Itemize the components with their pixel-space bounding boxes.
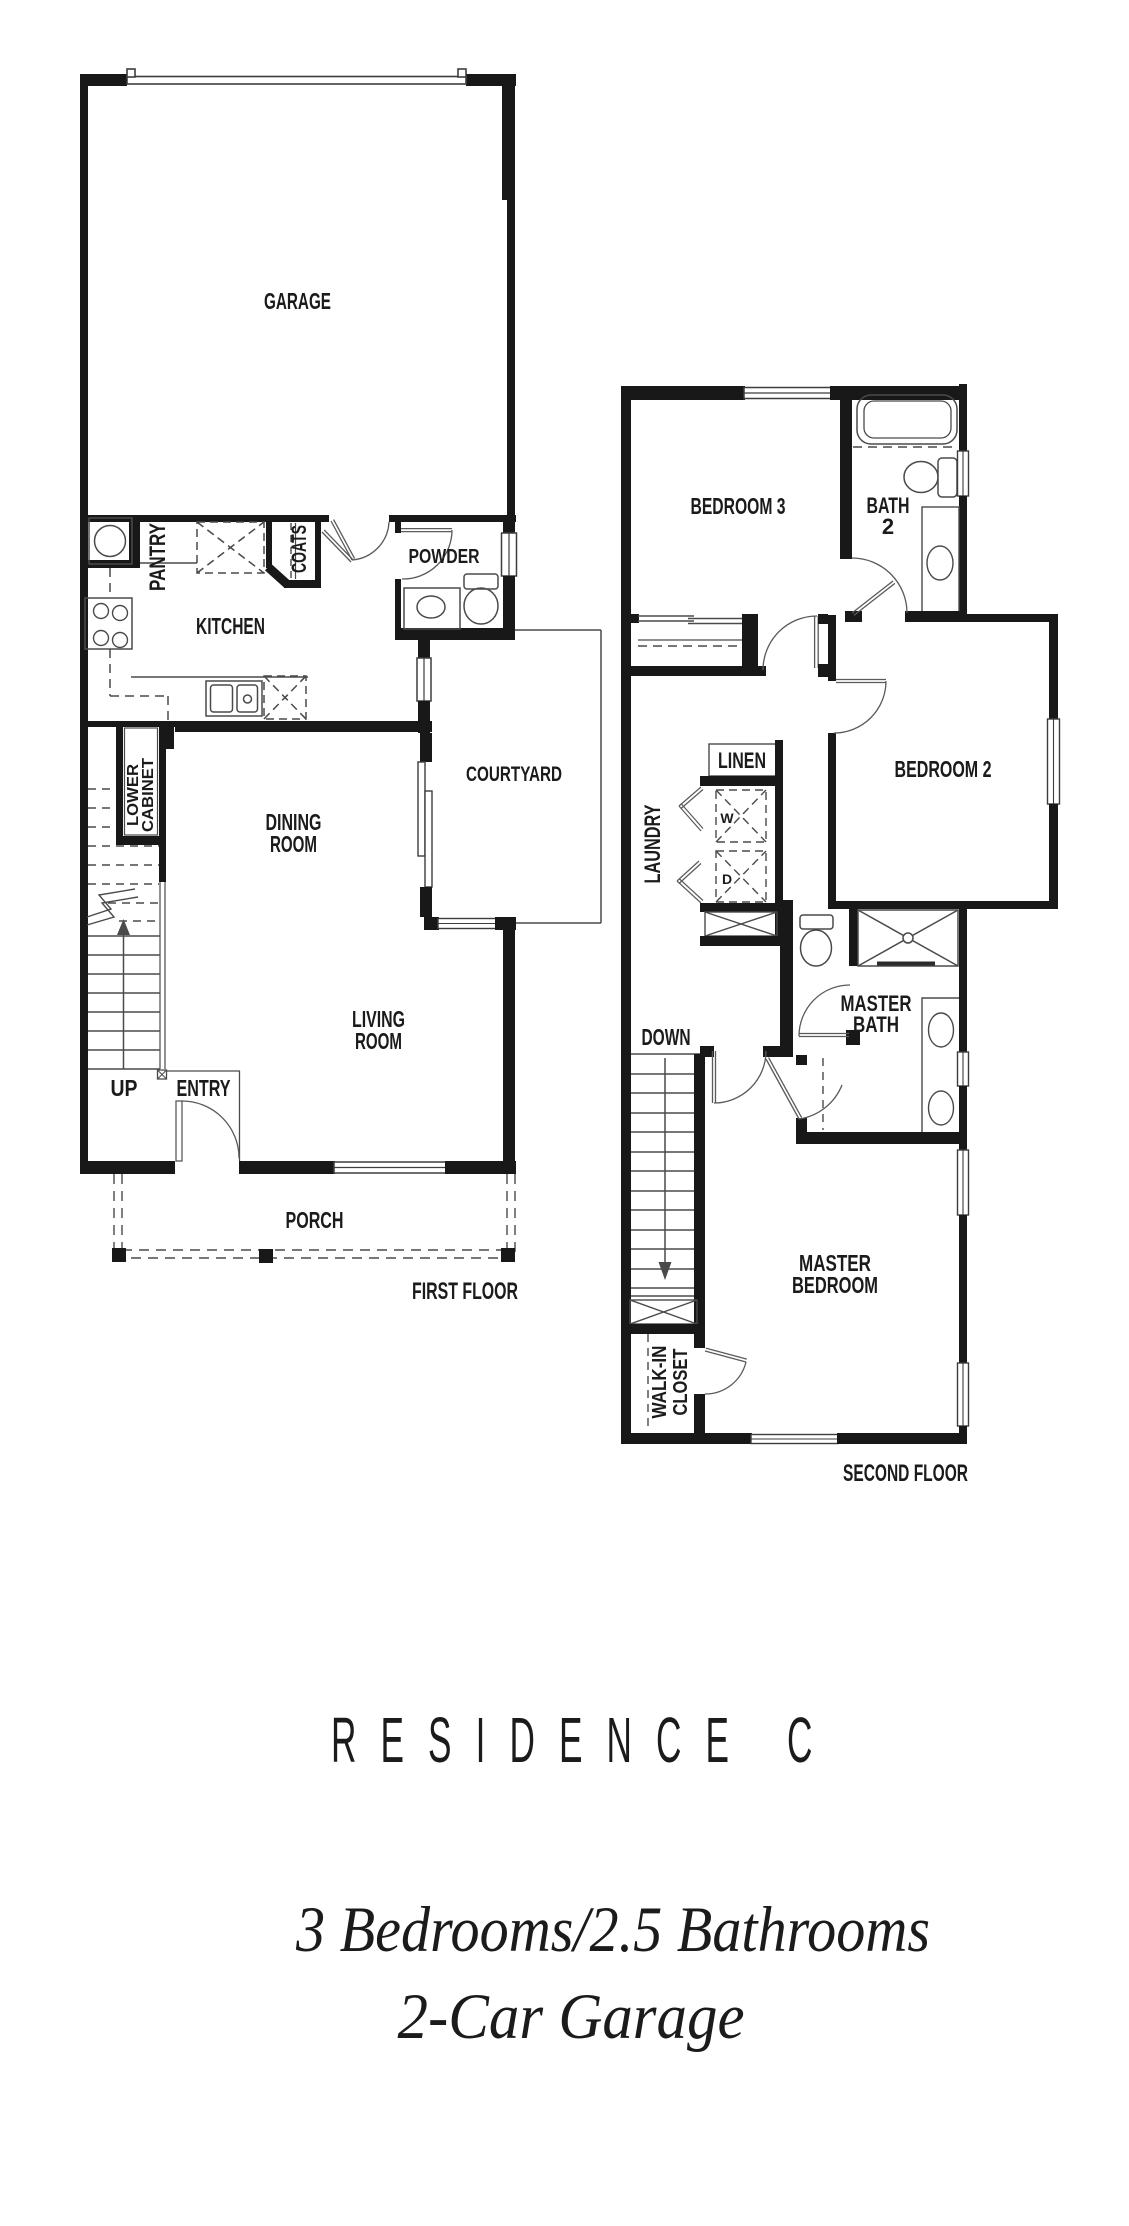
svg-text:BEDROOM 3: BEDROOM 3 bbox=[691, 493, 786, 519]
svg-text:ROOM: ROOM bbox=[270, 831, 317, 857]
svg-text:PORCH: PORCH bbox=[286, 1207, 344, 1233]
svg-text:BEDROOM 2: BEDROOM 2 bbox=[895, 756, 992, 782]
svg-text:CLOSET: CLOSET bbox=[670, 1349, 692, 1416]
svg-text:2: 2 bbox=[882, 514, 894, 539]
svg-text:GARAGE: GARAGE bbox=[264, 288, 331, 314]
svg-text:WALK-IN: WALK-IN bbox=[649, 1346, 671, 1419]
svg-text:BATH: BATH bbox=[853, 1012, 899, 1037]
svg-text:ENTRY: ENTRY bbox=[177, 1075, 231, 1101]
svg-text:BEDROOM: BEDROOM bbox=[792, 1272, 878, 1298]
svg-text:CABINET: CABINET bbox=[140, 757, 157, 832]
svg-text:UP: UP bbox=[111, 1075, 138, 1101]
svg-text:3 Bedrooms/2.5 Bathrooms: 3 Bedrooms/2.5 Bathrooms bbox=[295, 1894, 930, 1966]
svg-text:W: W bbox=[720, 810, 734, 826]
svg-text:SECOND FLOOR: SECOND FLOOR bbox=[843, 1460, 968, 1487]
svg-text:KITCHEN: KITCHEN bbox=[196, 613, 265, 639]
svg-text:COATS: COATS bbox=[288, 525, 311, 573]
svg-text:LAUNDRY: LAUNDRY bbox=[640, 804, 665, 883]
svg-text:D: D bbox=[722, 871, 732, 887]
svg-text:RESIDENCE C: RESIDENCE C bbox=[331, 1704, 836, 1776]
svg-text:ROOM: ROOM bbox=[355, 1028, 402, 1054]
svg-text:POWDER: POWDER bbox=[409, 546, 480, 568]
svg-text:LINEN: LINEN bbox=[718, 748, 766, 773]
svg-text:PANTRY: PANTRY bbox=[145, 523, 170, 591]
svg-text:DOWN: DOWN bbox=[642, 1024, 691, 1050]
svg-text:2-Car Garage: 2-Car Garage bbox=[398, 1981, 745, 2053]
svg-text:FIRST FLOOR: FIRST FLOOR bbox=[412, 1278, 518, 1305]
svg-text:COURTYARD: COURTYARD bbox=[466, 763, 562, 786]
